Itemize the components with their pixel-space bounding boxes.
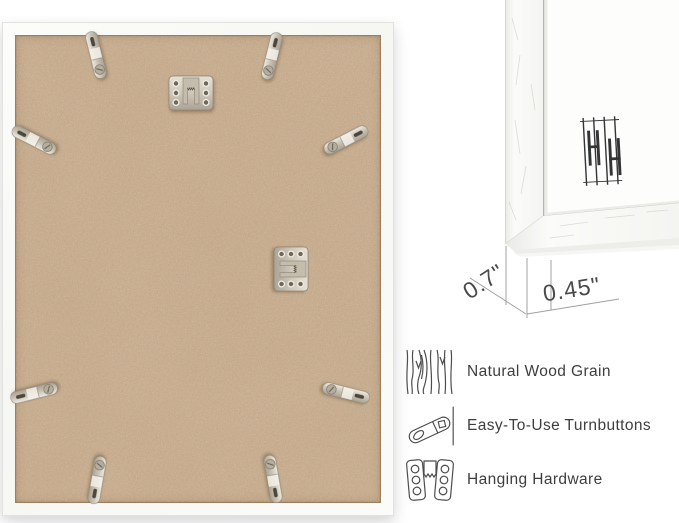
- feature-label: Hanging Hardware: [458, 471, 603, 489]
- feature-legend: Natural Wood Grain Easy-To-Use Turnbutto…: [402, 347, 679, 509]
- dimension-label-face-width: 0.45": [541, 272, 602, 307]
- feature-row-turnbuttons: Easy-To-Use Turnbuttons: [402, 401, 679, 451]
- sawtooth-hanger: [273, 246, 309, 292]
- feature-label: Easy-To-Use Turnbuttons: [458, 417, 651, 435]
- wood-grain-icon: [402, 349, 458, 395]
- feature-row-hanging-hardware: Hanging Hardware: [402, 455, 679, 505]
- hanging-hardware-icon: [402, 456, 458, 504]
- canvas-face: [543, 0, 679, 218]
- sawtooth-hanger: [168, 75, 214, 111]
- frame-back-photo: [2, 22, 394, 516]
- dimension-label-depth: 0.7": [458, 258, 509, 304]
- frame-corner-closeup: 0.7" 0.45": [400, 0, 679, 345]
- turnbutton-icon: [402, 403, 458, 449]
- feature-label: Natural Wood Grain: [458, 363, 611, 381]
- feature-row-wood-grain: Natural Wood Grain: [402, 347, 679, 397]
